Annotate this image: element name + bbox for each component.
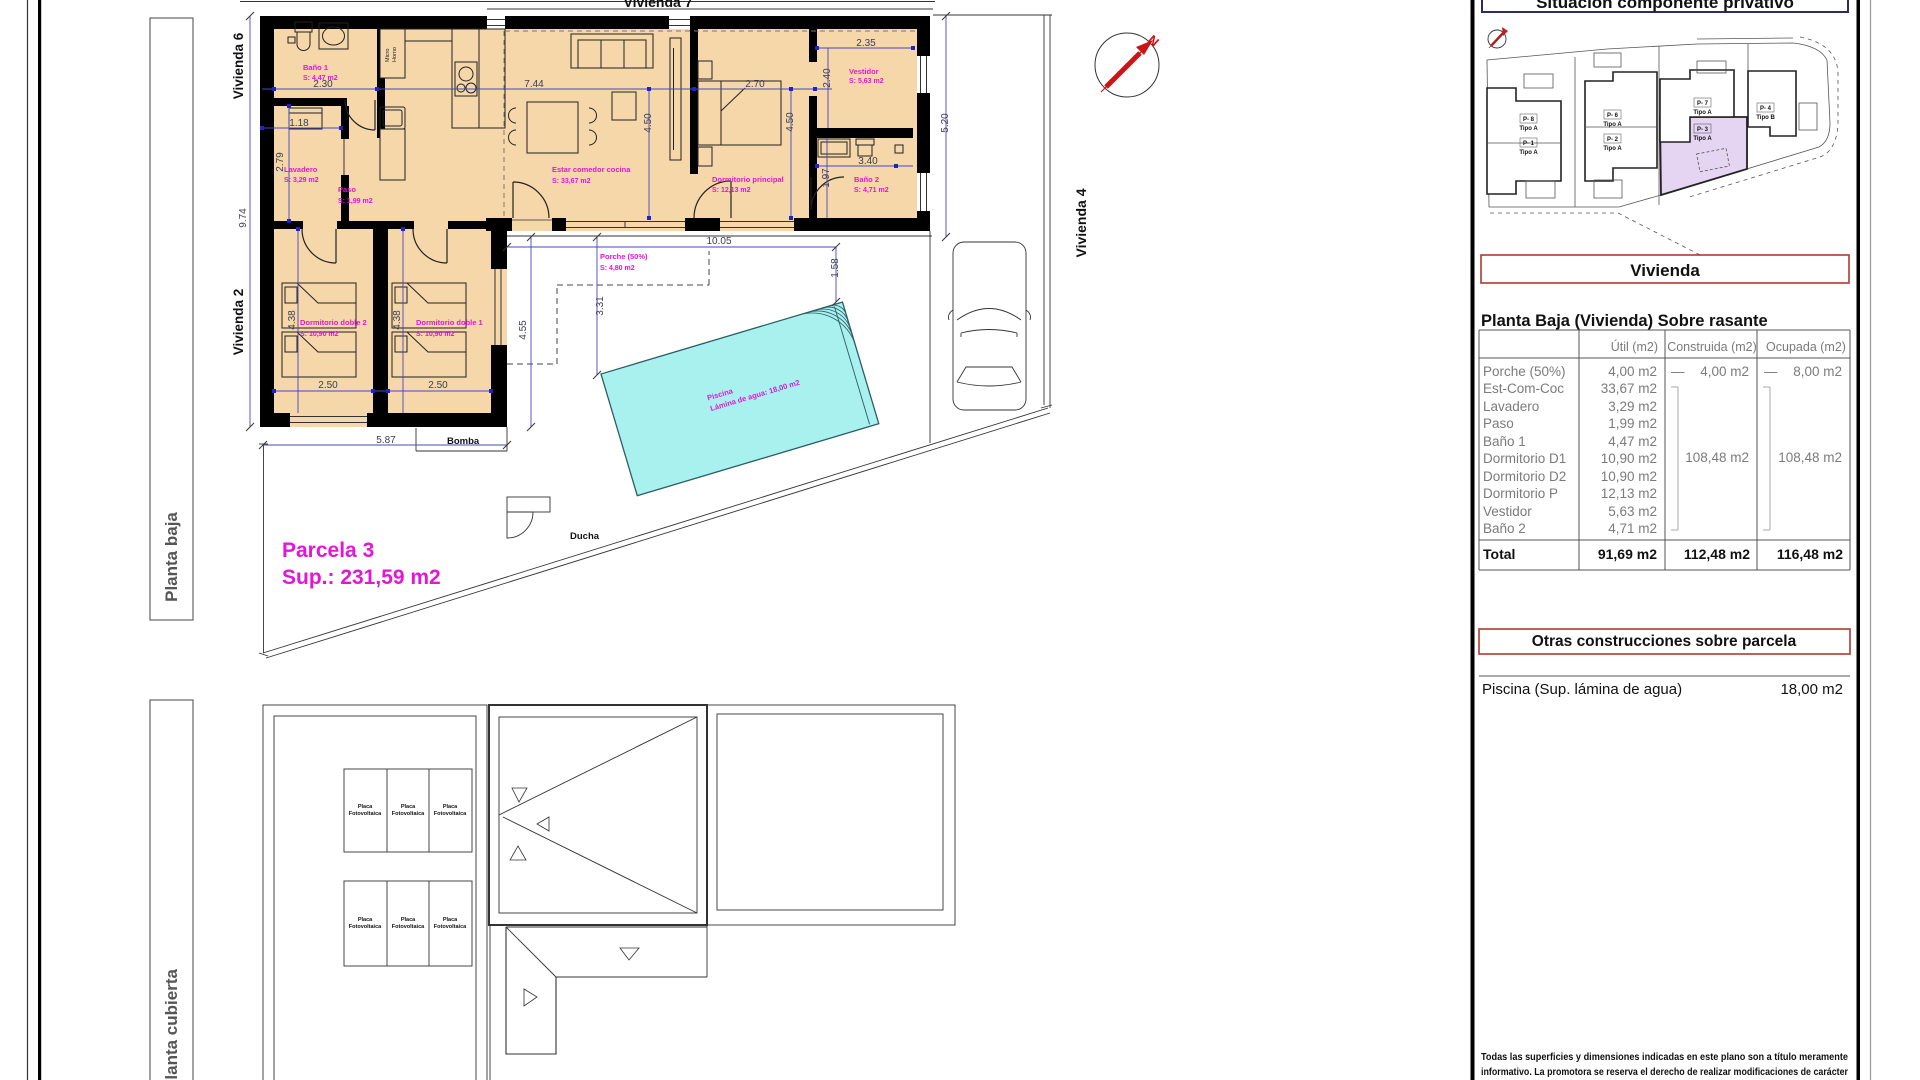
svg-text:Fotovoltaica: Fotovoltaica (349, 924, 382, 930)
svg-text:4.38: 4.38 (287, 310, 298, 330)
svg-text:108,48 m2: 108,48 m2 (1778, 450, 1842, 465)
svg-text:33,67 m2: 33,67 m2 (1601, 381, 1657, 396)
svg-text:Fotovoltaica: Fotovoltaica (392, 811, 425, 817)
svg-text:S: 3,29 m2: S: 3,29 m2 (284, 177, 319, 184)
svg-text:Vivienda 7: Vivienda 7 (623, 0, 692, 10)
svg-text:3,29 m2: 3,29 m2 (1608, 399, 1657, 414)
svg-text:S: 1,99 m2: S: 1,99 m2 (338, 198, 373, 205)
svg-text:—: — (1671, 364, 1685, 379)
svg-text:4,00 m2: 4,00 m2 (1700, 364, 1749, 379)
svg-text:Baño 1: Baño 1 (1483, 434, 1526, 449)
svg-text:Tipo A: Tipo A (1603, 146, 1622, 152)
svg-text:4,71 m2: 4,71 m2 (1608, 521, 1657, 536)
svg-text:Tipo A: Tipo A (1519, 150, 1538, 156)
svg-text:10,90 m2: 10,90 m2 (1601, 451, 1657, 466)
svg-text:4,00 m2: 4,00 m2 (1608, 364, 1657, 379)
svg-text:Todas las superficies y dimens: Todas las superficies y dimensiones indi… (1481, 1051, 1848, 1063)
svg-text:5.20: 5.20 (940, 113, 951, 133)
svg-text:Otras construcciones sobre par: Otras construcciones sobre parcela (1532, 633, 1797, 650)
svg-text:S: 4,71 m2: S: 4,71 m2 (854, 187, 889, 194)
svg-text:Horno: Horno (392, 47, 398, 62)
svg-text:10.05: 10.05 (706, 236, 731, 247)
svg-text:S: 4,80 m2: S: 4,80 m2 (600, 265, 635, 272)
svg-text:Placa: Placa (443, 917, 458, 923)
svg-text:Dormitorio D1: Dormitorio D1 (1483, 451, 1566, 466)
svg-text:4.50: 4.50 (643, 113, 654, 133)
svg-text:S: 5,63 m2: S: 5,63 m2 (849, 78, 884, 85)
svg-text:P- 7: P- 7 (1697, 101, 1709, 107)
svg-text:Tipo A: Tipo A (1693, 136, 1712, 142)
svg-text:2.70: 2.70 (745, 79, 765, 90)
svg-text:Ducha: Ducha (570, 531, 600, 542)
svg-text:2.35: 2.35 (856, 38, 876, 49)
svg-text:P- 6: P- 6 (1607, 113, 1619, 119)
svg-text:Lavadero: Lavadero (1483, 399, 1539, 414)
svg-text:3.31: 3.31 (595, 296, 606, 316)
svg-text:2.50: 2.50 (428, 380, 448, 391)
svg-text:Porche (50%): Porche (50%) (600, 252, 648, 261)
svg-text:S: 10,90 m2: S: 10,90 m2 (416, 331, 455, 338)
svg-text:Fotovoltaica: Fotovoltaica (392, 924, 425, 930)
svg-text:Dormitorio P: Dormitorio P (1483, 486, 1558, 501)
svg-text:Piscina (Sup. lámina de agua): Piscina (Sup. lámina de agua) (1482, 681, 1682, 698)
svg-text:Tipo A: Tipo A (1519, 126, 1538, 132)
svg-text:Micro: Micro (385, 49, 391, 62)
svg-text:Baño 2: Baño 2 (1483, 521, 1526, 536)
svg-text:Construida (m2): Construida (m2) (1667, 340, 1757, 354)
svg-text:Placa: Placa (401, 917, 416, 923)
svg-text:Vestidor: Vestidor (1483, 504, 1532, 519)
svg-text:1.97: 1.97 (821, 168, 832, 188)
svg-text:Placa: Placa (443, 804, 458, 810)
svg-text:P- 8: P- 8 (1523, 117, 1535, 123)
svg-text:Paso: Paso (1483, 416, 1514, 431)
svg-text:7.44: 7.44 (524, 79, 544, 90)
svg-text:Sup.: 231,59 m2: Sup.: 231,59 m2 (282, 566, 441, 589)
svg-text:S: 33,67 m2: S: 33,67 m2 (552, 178, 591, 185)
svg-text:18,00 m2: 18,00 m2 (1780, 681, 1843, 698)
svg-text:Dormitorio doble 2: Dormitorio doble 2 (300, 318, 367, 327)
svg-text:4.55: 4.55 (518, 320, 529, 340)
svg-text:Vestidor: Vestidor (849, 67, 879, 76)
svg-text:1.58: 1.58 (830, 258, 841, 278)
svg-text:Placa: Placa (358, 804, 373, 810)
svg-text:P- 3: P- 3 (1697, 127, 1709, 133)
svg-text:2.40: 2.40 (822, 68, 833, 88)
svg-text:91,69 m2: 91,69 m2 (1598, 546, 1657, 562)
svg-text:Placa: Placa (358, 917, 373, 923)
svg-text:Ocupada (m2): Ocupada (m2) (1766, 340, 1846, 354)
svg-text:1.18: 1.18 (289, 118, 309, 129)
svg-text:Porche (50%): Porche (50%) (1483, 364, 1566, 379)
svg-text:Vivienda 4: Vivienda 4 (1073, 188, 1089, 257)
svg-text:Tipo A: Tipo A (1693, 110, 1712, 116)
svg-text:Lavadero: Lavadero (284, 165, 318, 174)
svg-text:Planta Baja (Vivienda) Sobre r: Planta Baja (Vivienda) Sobre rasante (1481, 312, 1768, 330)
svg-text:5,63 m2: 5,63 m2 (1608, 504, 1657, 519)
svg-text:2.50: 2.50 (318, 380, 338, 391)
svg-text:Planta baja: Planta baja (162, 512, 181, 602)
svg-text:5.87: 5.87 (376, 435, 396, 446)
svg-text:12,13 m2: 12,13 m2 (1601, 486, 1657, 501)
svg-text:Vivienda 2: Vivienda 2 (231, 289, 246, 356)
svg-text:1,99 m2: 1,99 m2 (1608, 416, 1657, 431)
svg-text:Parcela 3: Parcela 3 (282, 539, 374, 562)
svg-text:Vivienda: Vivienda (1630, 261, 1700, 280)
svg-text:Paso: Paso (338, 185, 356, 194)
svg-text:3.40: 3.40 (858, 156, 878, 167)
svg-text:Tipo B: Tipo B (1756, 115, 1775, 121)
svg-text:Baño 2: Baño 2 (854, 175, 879, 184)
svg-text:Total: Total (1483, 546, 1515, 562)
svg-text:8,00 m2: 8,00 m2 (1793, 364, 1842, 379)
svg-text:Est-Com-Coc: Est-Com-Coc (1483, 381, 1564, 396)
svg-text:—: — (1764, 364, 1778, 379)
svg-text:Planta cubierta: Planta cubierta (162, 969, 181, 1080)
svg-text:Fotovoltaica: Fotovoltaica (349, 811, 382, 817)
svg-text:Fotovoltaica: Fotovoltaica (434, 811, 467, 817)
svg-text:4.38: 4.38 (392, 310, 403, 330)
svg-text:Placa: Placa (401, 804, 416, 810)
svg-text:9.74: 9.74 (238, 208, 249, 228)
svg-text:108,48 m2: 108,48 m2 (1685, 450, 1749, 465)
svg-text:Dormitorio D2: Dormitorio D2 (1483, 469, 1566, 484)
svg-text:Estar comedor cocina: Estar comedor cocina (552, 165, 631, 174)
svg-text:S: 4,47 m2: S: 4,47 m2 (303, 75, 338, 82)
svg-text:S: 12,13 m2: S: 12,13 m2 (712, 187, 751, 194)
svg-text:P- 2: P- 2 (1607, 137, 1619, 143)
svg-text:4.50: 4.50 (785, 112, 796, 132)
svg-text:116,48 m2: 116,48 m2 (1777, 546, 1843, 562)
svg-text:S: 10,90 m2: S: 10,90 m2 (300, 331, 339, 338)
svg-text:P- 4: P- 4 (1760, 106, 1772, 112)
svg-text:112,48 m2: 112,48 m2 (1684, 546, 1750, 562)
svg-text:Baño 1: Baño 1 (303, 63, 328, 72)
svg-text:Tipo A: Tipo A (1603, 122, 1622, 128)
svg-text:4,47 m2: 4,47 m2 (1608, 434, 1657, 449)
svg-text:Útil (m2): Útil (m2) (1611, 339, 1658, 354)
svg-text:Bomba: Bomba (447, 436, 480, 447)
svg-text:Vivienda 6: Vivienda 6 (231, 32, 246, 99)
svg-text:Situación componente privativo: Situación componente privativo (1536, 0, 1794, 12)
svg-text:Dormitorio doble 1: Dormitorio doble 1 (416, 318, 483, 327)
svg-text:10,90 m2: 10,90 m2 (1601, 469, 1657, 484)
svg-text:informativo. La promotora se r: informativo. La promotora se reserva el … (1481, 1066, 1848, 1078)
svg-text:P- 1: P- 1 (1523, 141, 1535, 147)
svg-text:Fotovoltaica: Fotovoltaica (434, 924, 467, 930)
svg-text:Dormitorio principal: Dormitorio principal (712, 175, 784, 184)
